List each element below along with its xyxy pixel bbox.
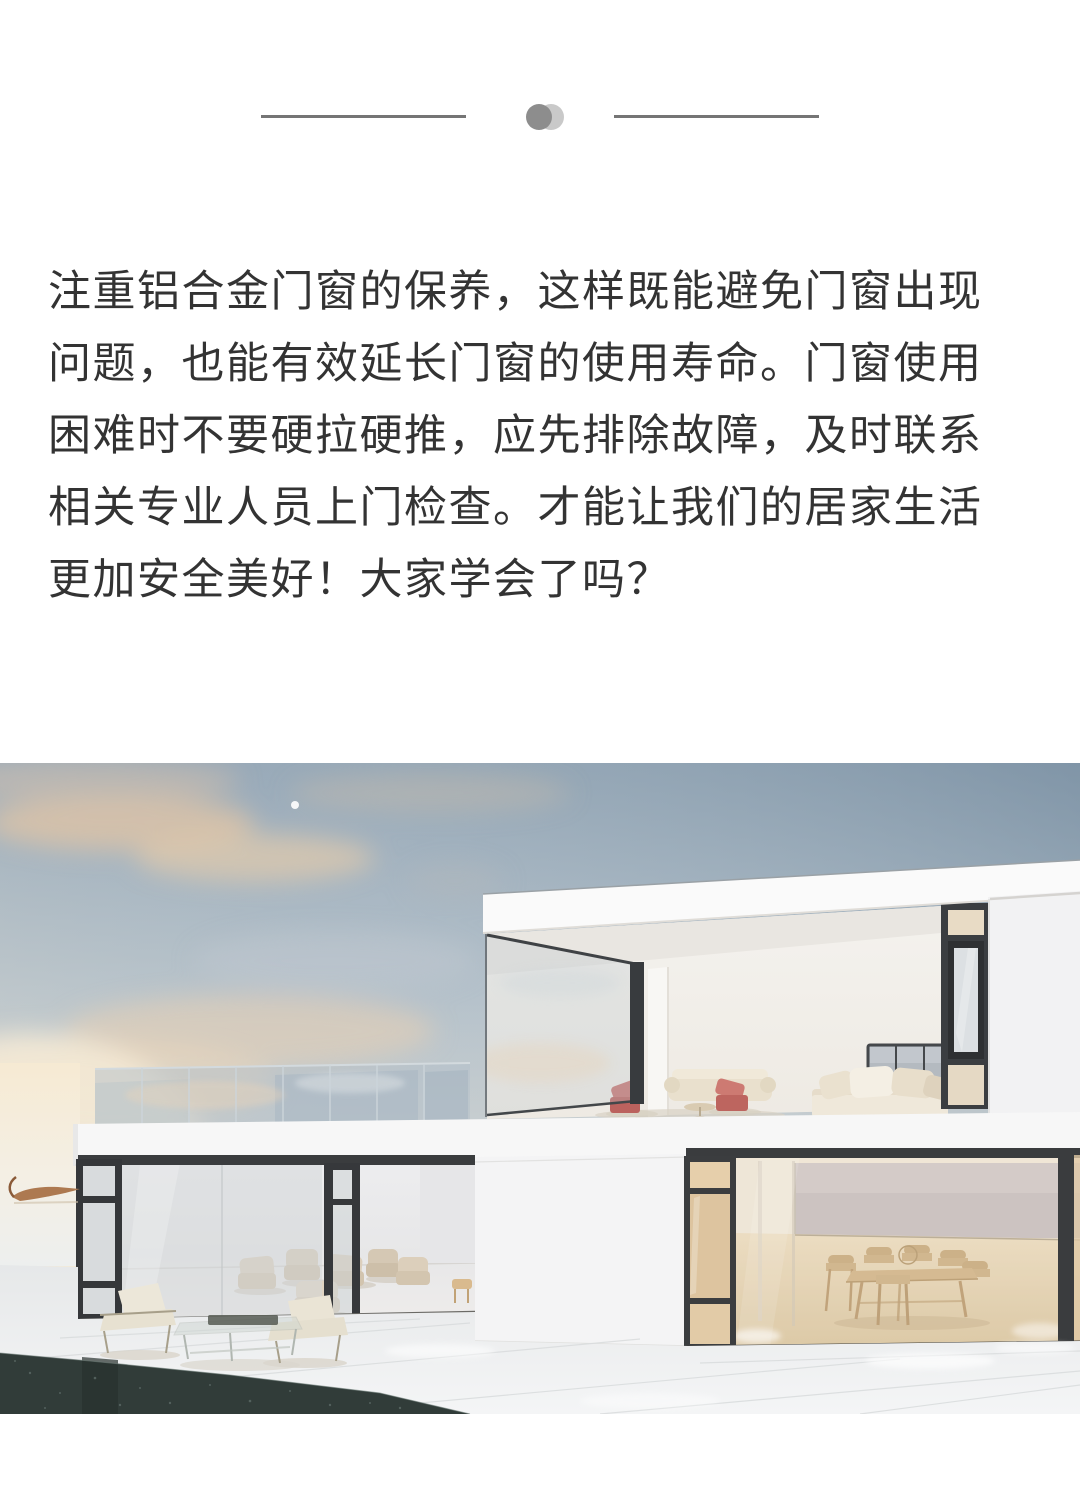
upper-floor — [470, 903, 991, 1125]
terrace-glass-railing — [95, 1063, 470, 1129]
paragraph-line: 更加安全美好！大家学会了吗？ — [48, 544, 1038, 616]
paragraph-line: 问题，也能有效延长门窗的使用寿命。门窗使用 — [48, 328, 1038, 400]
sky-speck — [291, 801, 299, 809]
house-illustration — [0, 763, 1080, 1414]
divider-dot-front — [526, 104, 552, 130]
divider-line-left — [261, 115, 466, 118]
article-paragraph: 注重铝合金门窗的保养，这样既能避免门窗出现 问题，也能有效延长门窗的使用寿命。门… — [48, 256, 1038, 616]
divider-line-right — [614, 115, 819, 118]
ground-wall-pillar — [475, 1154, 688, 1346]
paragraph-line: 相关专业人员上门检查。才能让我们的居家生活 — [48, 472, 1038, 544]
divider-dot — [524, 103, 566, 131]
paragraph-line: 困难时不要硬拉硬推，应先排除故障，及时联系 — [48, 400, 1038, 472]
ground-right-opening — [684, 1148, 1080, 1349]
section-divider — [0, 103, 1080, 131]
article-page: 注重铝合金门窗的保养，这样既能避免门窗出现 问题，也能有效延长门窗的使用寿命。门… — [0, 0, 1080, 1499]
house-photo — [0, 763, 1080, 1414]
paragraph-line: 注重铝合金门窗的保养，这样既能避免门窗出现 — [48, 256, 1038, 328]
